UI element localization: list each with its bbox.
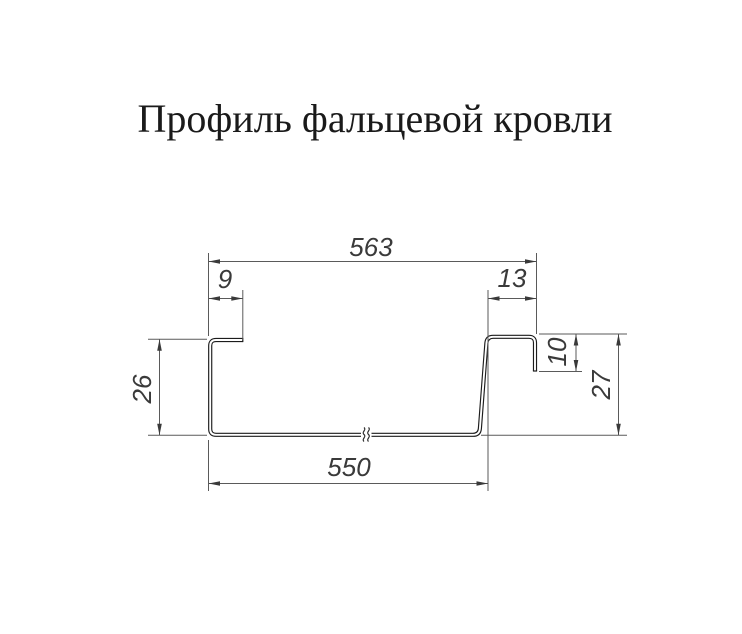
drawing-title: Профиль фальцевой кровли: [138, 96, 613, 141]
dim-label-right-lip: 10: [542, 337, 572, 366]
break-symbol-mask: [361, 428, 372, 442]
dim-label-bottom-width: 550: [327, 452, 371, 482]
dim-label-right-height: 27: [586, 369, 616, 400]
dim-label-left-flange: 9: [218, 264, 232, 294]
dim-label-left-height: 26: [127, 374, 157, 404]
profile-drawing-canvas: Профиль фальцевой кровли: [0, 0, 742, 634]
dim-label-right-flange: 13: [498, 263, 527, 293]
dim-label-top-width: 563: [349, 232, 393, 262]
drawing-page: Профиль фальцевой кровли: [0, 0, 742, 634]
